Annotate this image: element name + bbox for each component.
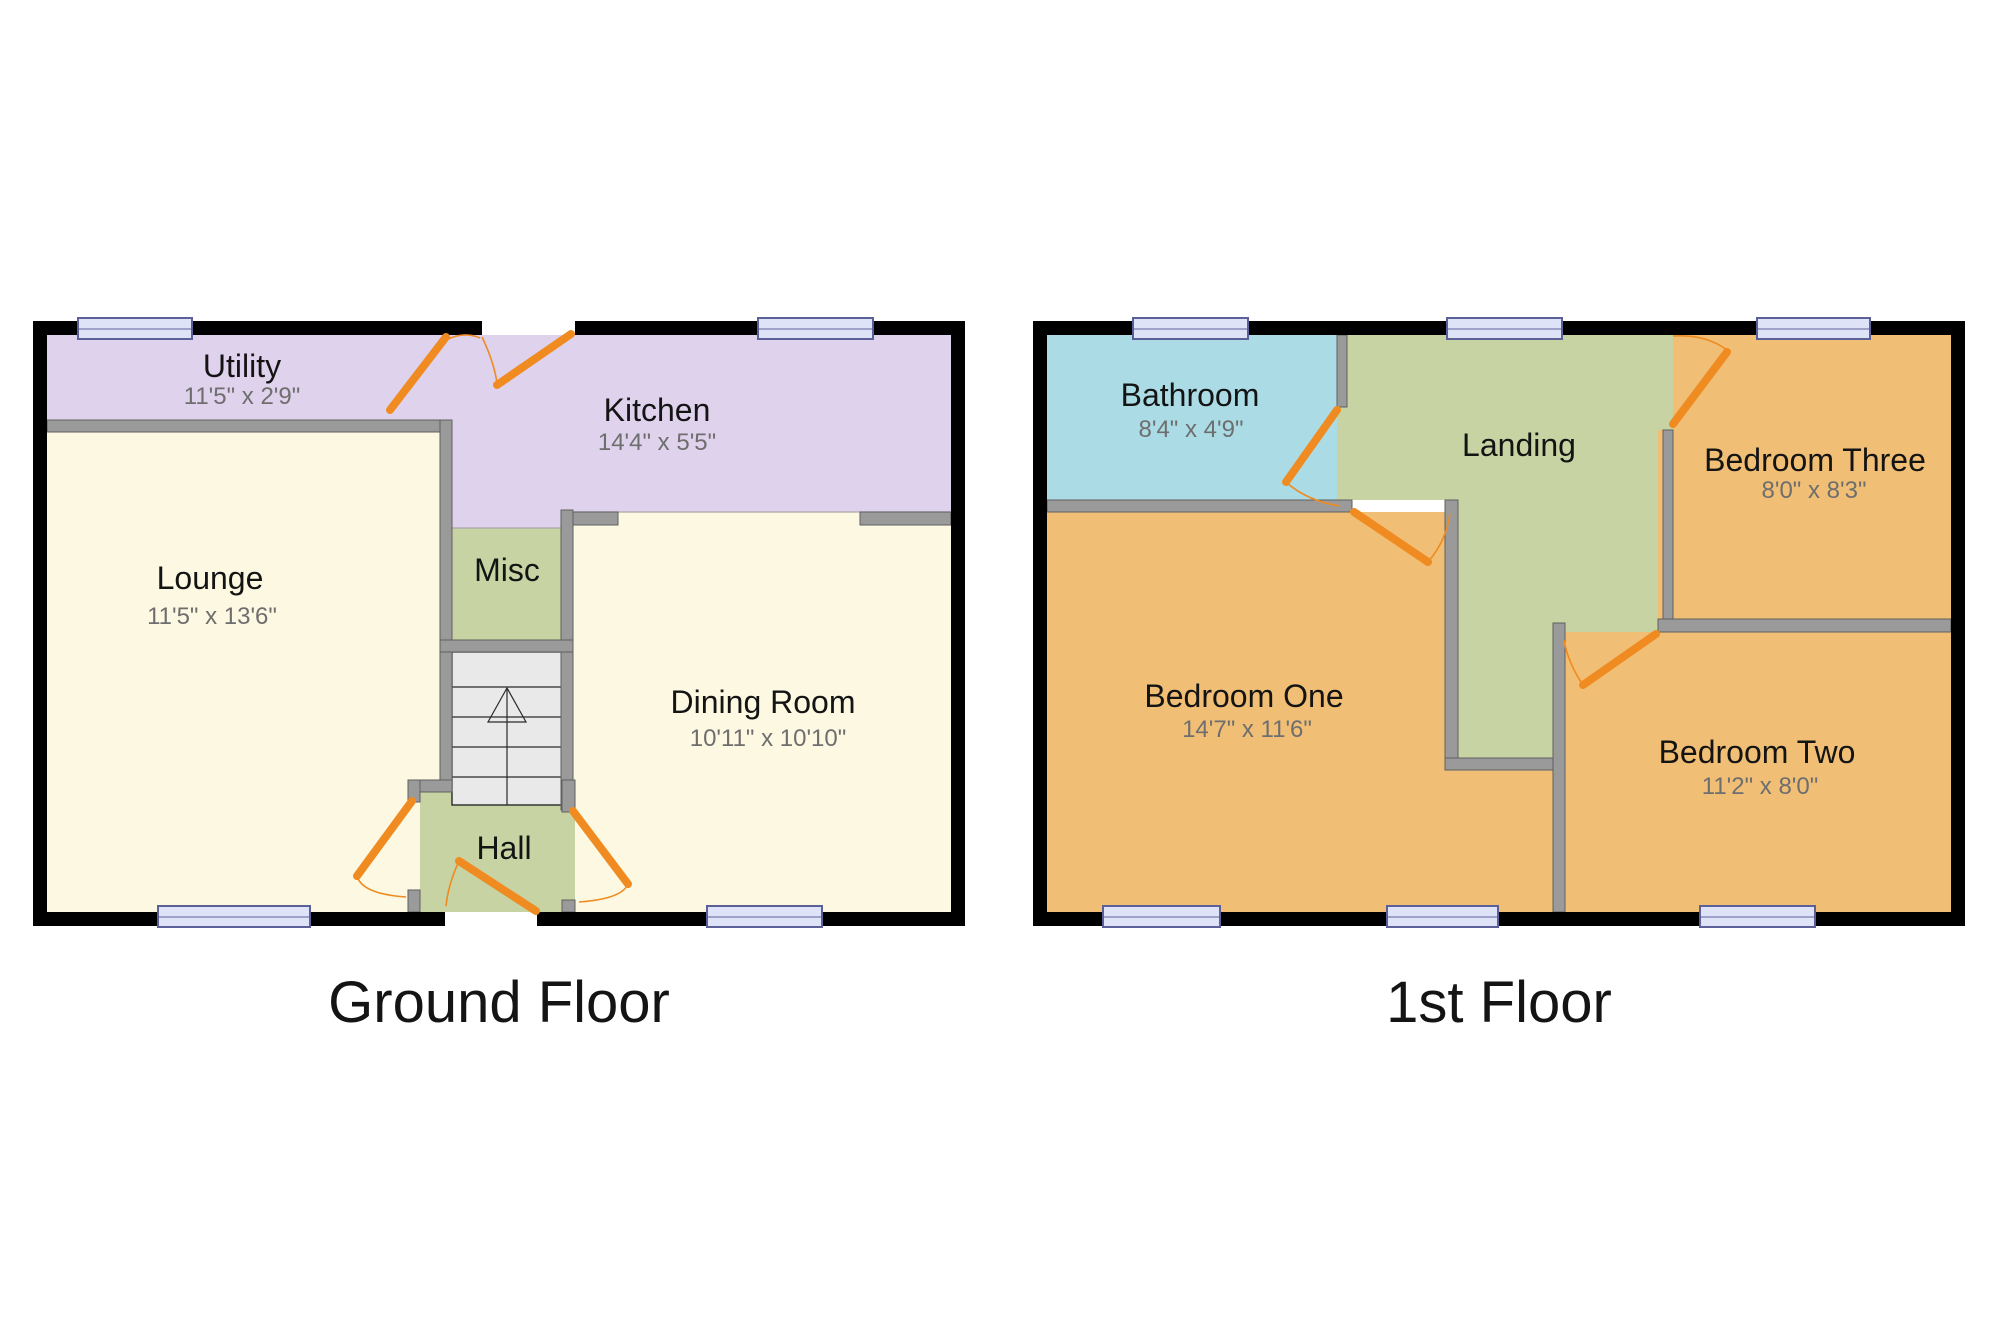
first-floor-title: 1st Floor — [1386, 970, 1612, 1035]
window — [1700, 906, 1815, 927]
room-dims-bedroom-three: 8'0" x 8'3" — [1762, 477, 1867, 504]
wall-segment — [860, 512, 951, 525]
floorplan-page: Utility 11'5" x 2'9" Kitchen 14'4" x 5'5… — [0, 0, 2000, 1333]
wall-segment — [408, 890, 420, 912]
ground-floor-title: Ground Floor — [328, 970, 670, 1035]
room-label-utility: Utility — [203, 348, 281, 384]
room-label-bedroom-three: Bedroom Three — [1704, 442, 1926, 478]
wall-segment — [1033, 321, 1047, 926]
window — [1447, 318, 1562, 339]
wall-segment — [561, 510, 573, 810]
room-label-bedroom-one: Bedroom One — [1144, 678, 1343, 714]
room-label-misc: Misc — [474, 552, 540, 588]
room-dims-bathroom: 8'4" x 4'9" — [1139, 416, 1244, 443]
wall-segment — [1047, 500, 1352, 512]
wall-segment — [440, 420, 452, 792]
ground-floor-plan: Utility 11'5" x 2'9" Kitchen 14'4" x 5'5… — [33, 318, 965, 1035]
wall-segment — [1658, 619, 1951, 632]
wall-segment — [1337, 335, 1347, 407]
wall-segment — [33, 321, 47, 926]
wall-segment — [1553, 623, 1565, 912]
floorplan-canvas: Utility 11'5" x 2'9" Kitchen 14'4" x 5'5… — [0, 0, 2000, 1333]
wall-segment — [1951, 321, 1965, 926]
wall-segment — [1445, 500, 1458, 770]
room-dims-bedroom-one: 14'7" x 11'6" — [1182, 716, 1312, 743]
room-dims-utility: 11'5" x 2'9" — [184, 383, 301, 410]
room-label-bedroom-two: Bedroom Two — [1659, 734, 1856, 770]
window — [758, 318, 873, 339]
room-dims-kitchen: 14'4" x 5'5" — [598, 429, 716, 456]
wall-segment — [951, 321, 965, 926]
wall-segment — [440, 640, 573, 652]
room-label-bathroom: Bathroom — [1121, 377, 1260, 413]
first-floor-plan: Bathroom 8'4" x 4'9" Landing Bedroom Thr… — [1033, 318, 1965, 1035]
wall-segment — [47, 420, 440, 432]
room-label-kitchen: Kitchen — [604, 392, 711, 428]
room-label-hall: Hall — [476, 830, 531, 866]
room-dims-lounge: 11'5" x 13'6" — [147, 603, 277, 630]
window — [1387, 906, 1498, 927]
window — [1133, 318, 1248, 339]
wall-segment — [1663, 430, 1673, 632]
room-label-dining: Dining Room — [671, 684, 856, 720]
wall-segment — [1445, 758, 1565, 770]
room-dims-dining: 10'11" x 10'10" — [690, 725, 847, 752]
room-label-landing: Landing — [1462, 427, 1576, 463]
window — [707, 906, 822, 927]
room-dims-bedroom-two: 11'2" x 8'0" — [1702, 773, 1819, 800]
window — [1103, 906, 1220, 927]
room-bedroom-two — [1565, 632, 1951, 912]
room-label-lounge: Lounge — [157, 560, 264, 596]
wall-segment — [573, 512, 618, 525]
staircase — [452, 652, 562, 805]
window — [158, 906, 310, 927]
window — [1757, 318, 1870, 339]
window — [78, 318, 192, 339]
wall-segment — [562, 900, 575, 912]
